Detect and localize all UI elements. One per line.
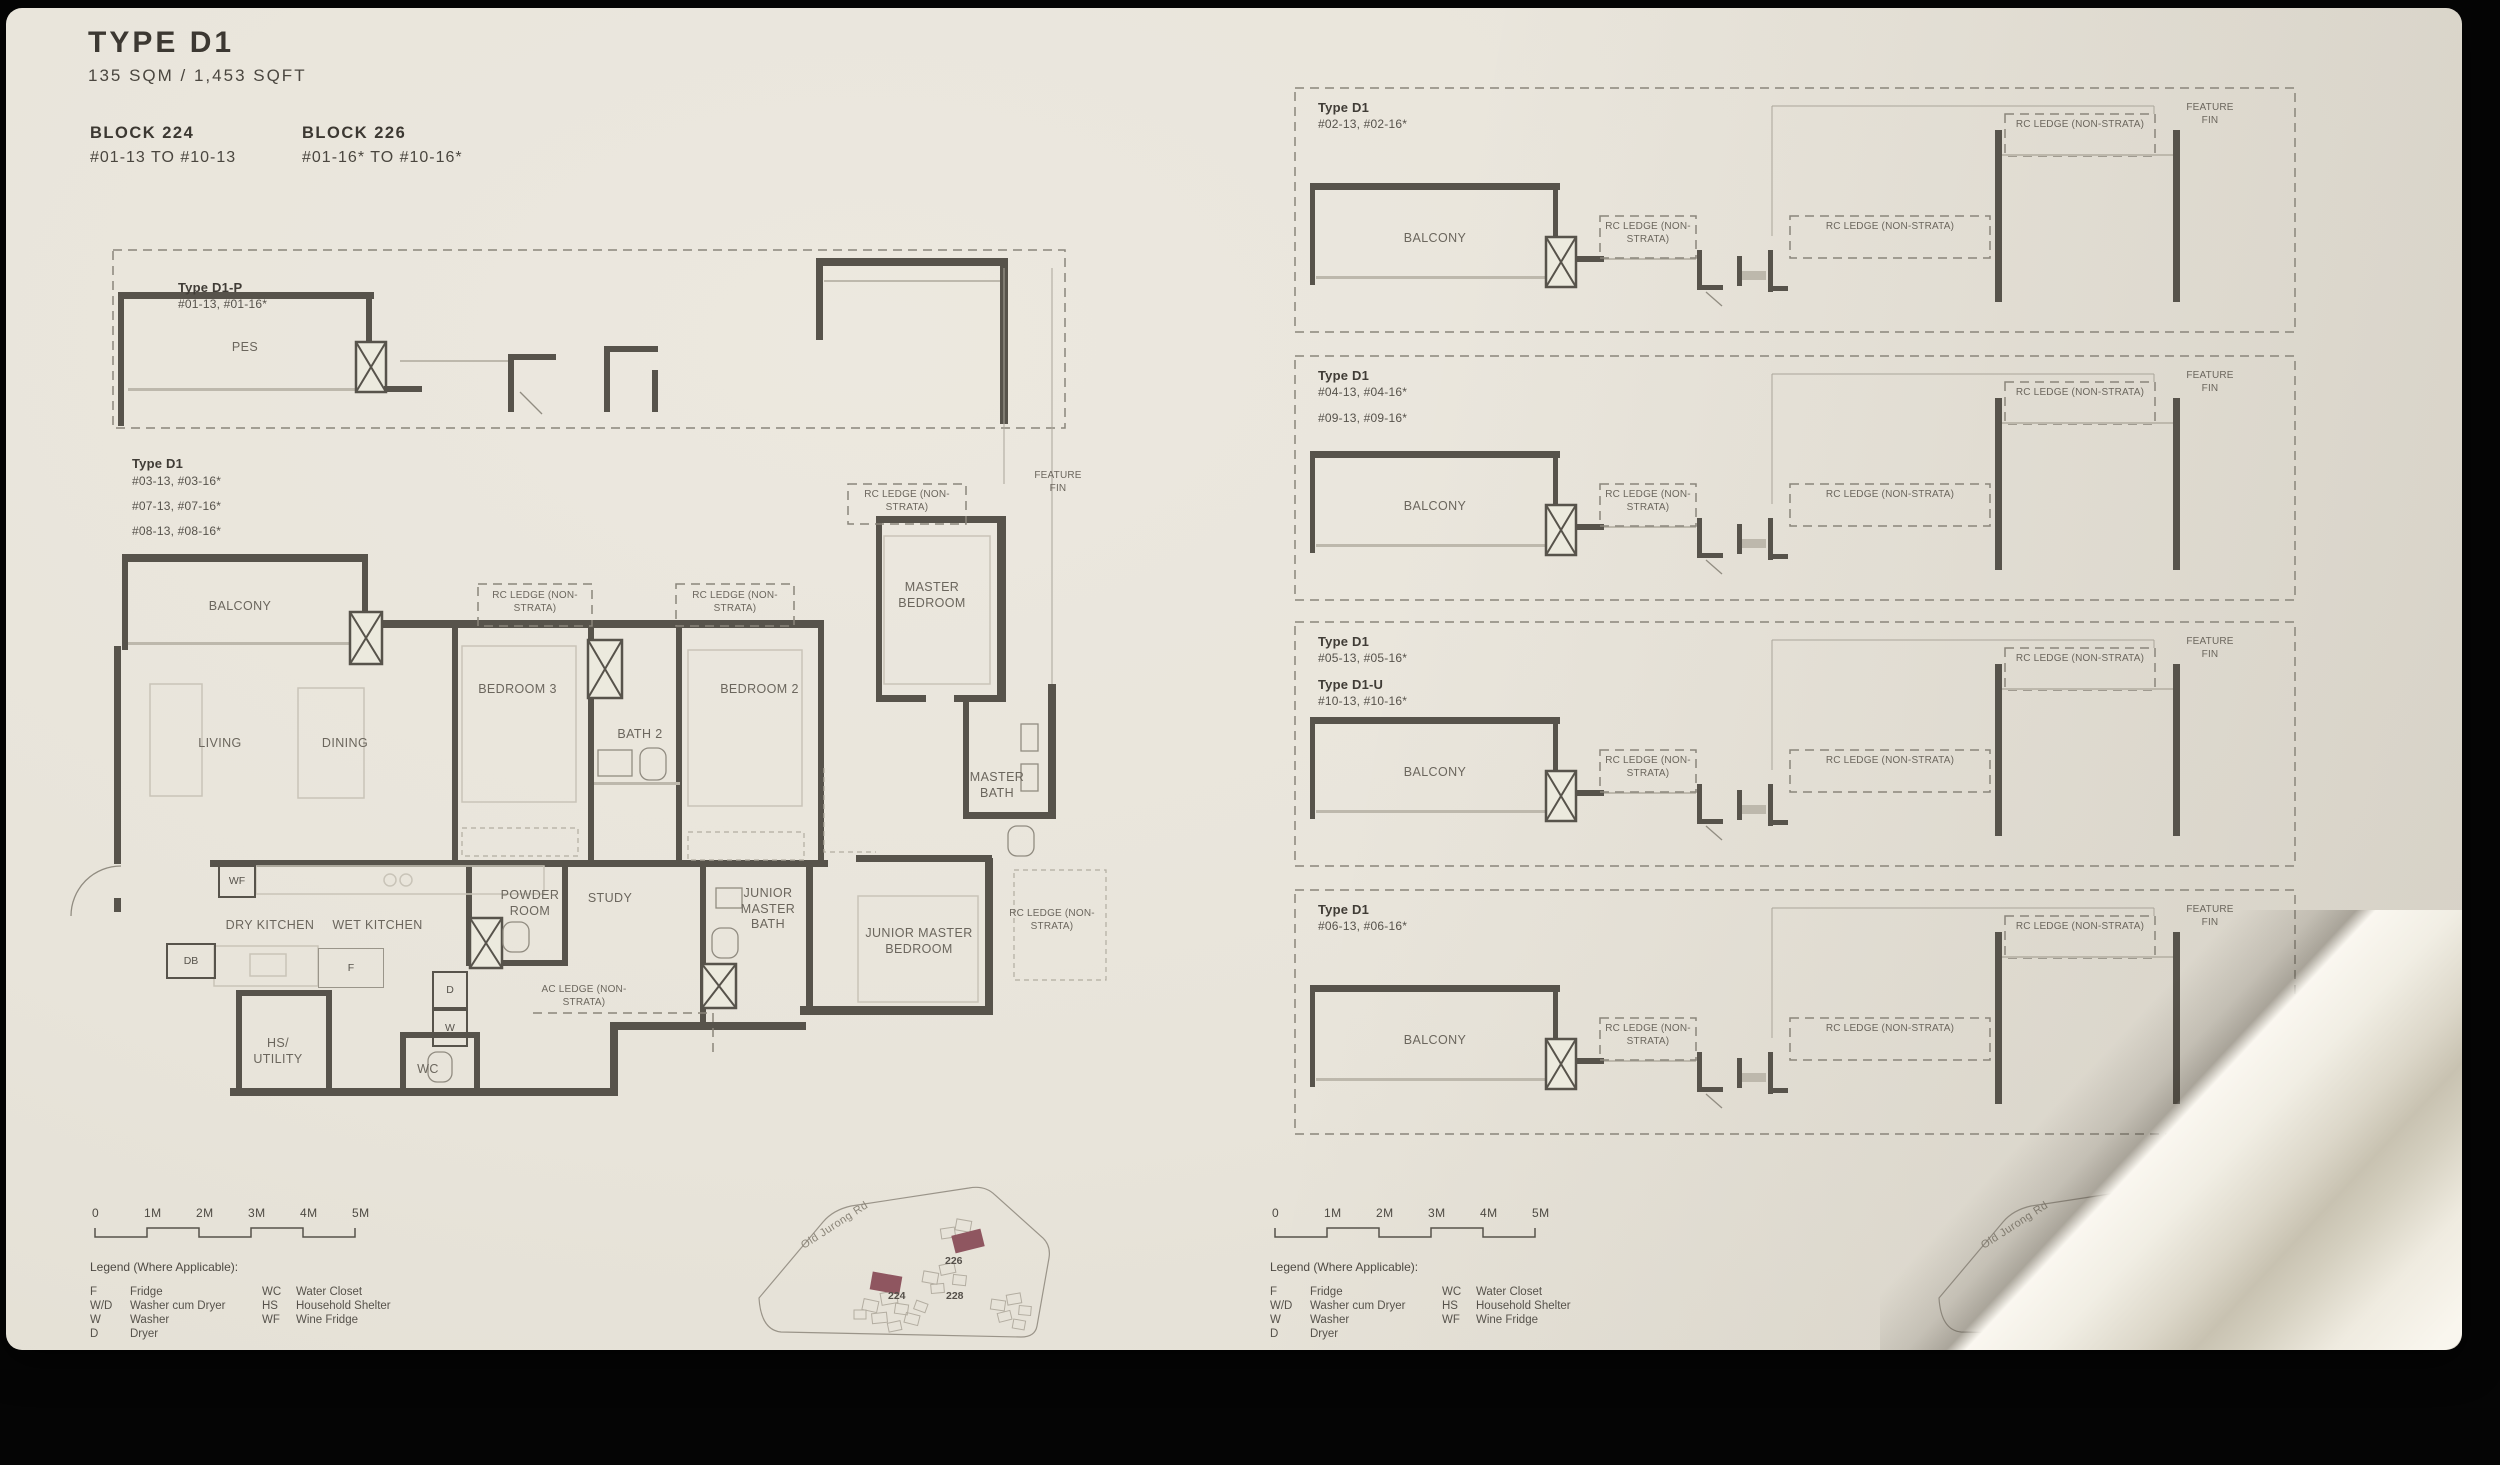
dryer-tag: D: [432, 971, 468, 1009]
legend-abbr: W/D: [90, 1300, 112, 1312]
legend-desc: Washer: [130, 1314, 169, 1326]
legend-abbr: HS: [262, 1300, 278, 1312]
scale-4m: 4M: [300, 1206, 318, 1220]
room-label-bedroom3: BEDROOM 3: [470, 682, 565, 698]
scale-1m: 1M: [144, 1206, 162, 1220]
elev3-units2: #10-13, #10-16*: [1318, 694, 1407, 708]
elev2-feature-fin: FEATURE FIN: [2180, 370, 2240, 395]
block-226-range: #01-16* TO #10-16*: [302, 149, 463, 167]
rc-ledge-label-junior: RC LEDGE (NON-STRATA): [998, 908, 1106, 933]
scale-1m: 1M: [1324, 1206, 1342, 1220]
legend-desc: Dryer: [1310, 1328, 1338, 1340]
scale-0: 0: [92, 1206, 99, 1220]
room-label-pes: PES: [205, 340, 285, 356]
legend-abbr: WF: [262, 1314, 280, 1326]
scale-3m: 3M: [248, 1206, 266, 1220]
legend-desc: Washer cum Dryer: [130, 1300, 225, 1312]
legend-abbr: F: [90, 1286, 97, 1298]
page-curl: [1880, 910, 2462, 1350]
legend-desc: Fridge: [1310, 1286, 1343, 1298]
block-226-name: BLOCK 226: [302, 124, 406, 143]
rc-ledge-label-2: RC LEDGE (NON-STRATA): [676, 590, 794, 615]
legend-desc: Wine Fridge: [1476, 1314, 1538, 1326]
elev3-units: #05-13, #05-16*: [1318, 651, 1407, 665]
room-label-powder-room: POWDER ROOM: [492, 888, 568, 919]
scale-0: 0: [1272, 1206, 1279, 1220]
site-map-block-226: 226: [945, 1255, 963, 1267]
elev3-rc-ledge-2: RC LEDGE (NON-STRATA): [1790, 755, 1990, 768]
elev3-rc-ledge-1: RC LEDGE (NON-STRATA): [1600, 755, 1696, 780]
db-tag: DB: [166, 943, 216, 979]
room-label-living: LIVING: [175, 736, 265, 752]
scale-4m: 4M: [1480, 1206, 1498, 1220]
legend-abbr: W: [90, 1314, 101, 1326]
legend-desc: Water Closet: [1476, 1286, 1542, 1298]
elev2-type: Type D1: [1318, 368, 1369, 383]
legend-abbr: F: [1270, 1286, 1277, 1298]
elev4-type: Type D1: [1318, 902, 1369, 917]
legend-abbr: WC: [262, 1286, 281, 1298]
block-224-range: #01-13 TO #10-13: [90, 149, 236, 167]
elev1-feature-fin: FEATURE FIN: [2180, 102, 2240, 127]
legend-abbr: W: [1270, 1314, 1281, 1326]
page-title: TYPE D1: [88, 26, 234, 60]
scale-2m: 2M: [1376, 1206, 1394, 1220]
rc-ledge-label-master: RC LEDGE (NON-STRATA): [848, 489, 966, 514]
legend-abbr: D: [90, 1328, 98, 1340]
elev3-type2: Type D1-U: [1318, 677, 1383, 692]
scale-3m: 3M: [1428, 1206, 1446, 1220]
legend-desc: Washer: [1310, 1314, 1349, 1326]
room-label-study: STUDY: [575, 891, 645, 907]
block-224-name: BLOCK 224: [90, 124, 194, 143]
room-label-bath2: BATH 2: [600, 727, 680, 743]
main-units-1: #03-13, #03-16*: [132, 474, 221, 488]
elev3-balcony: BALCONY: [1385, 765, 1485, 781]
elev2-rc-ledge-2: RC LEDGE (NON-STRATA): [1790, 489, 1990, 502]
legend-abbr: D: [1270, 1328, 1278, 1340]
site-map-block-224: 224: [888, 1290, 906, 1302]
main-units-2: #07-13, #07-16*: [132, 499, 221, 513]
scale-2m: 2M: [196, 1206, 214, 1220]
elev2-rc-ledge-top: RC LEDGE (NON-STRATA): [2005, 387, 2155, 400]
elev1-type: Type D1: [1318, 100, 1369, 115]
brochure-page: TYPE D1 135 SQM / 1,453 SQFT BLOCK 224 #…: [0, 0, 2500, 1465]
rc-ledge-label-1: RC LEDGE (NON-STRATA): [478, 590, 592, 615]
legend-desc: Water Closet: [296, 1286, 362, 1298]
elev1-rc-ledge-top: RC LEDGE (NON-STRATA): [2005, 119, 2155, 132]
room-label-balcony: BALCONY: [180, 599, 300, 615]
room-label-ac-ledge: AC LEDGE (NON-STRATA): [528, 984, 640, 1009]
legend-desc: Fridge: [130, 1286, 163, 1298]
scale-5m: 5M: [1532, 1206, 1550, 1220]
washer-tag: W: [432, 1009, 468, 1047]
legend-abbr: WC: [1442, 1286, 1461, 1298]
legend-abbr: WF: [1442, 1314, 1460, 1326]
elev3-feature-fin: FEATURE FIN: [2180, 636, 2240, 661]
elev3-type: Type D1: [1318, 634, 1369, 649]
elev1-rc-ledge-1: RC LEDGE (NON-STRATA): [1600, 221, 1696, 246]
main-units-3: #08-13, #08-16*: [132, 524, 221, 538]
scale-5m: 5M: [352, 1206, 370, 1220]
elev4-balcony: BALCONY: [1385, 1033, 1485, 1049]
page-area: 135 SQM / 1,453 SQFT: [88, 66, 307, 86]
room-label-wet-kitchen: WET KITCHEN: [330, 918, 425, 934]
elev1-units: #02-13, #02-16*: [1318, 117, 1407, 131]
legend-desc: Dryer: [130, 1328, 158, 1340]
elev1-balcony: BALCONY: [1385, 231, 1485, 247]
elev2-balcony: BALCONY: [1385, 499, 1485, 515]
elev4-rc-ledge-1: RC LEDGE (NON-STRATA): [1600, 1023, 1696, 1048]
elev2-units: #04-13, #04-16*: [1318, 385, 1407, 399]
legend-desc: Household Shelter: [1476, 1300, 1571, 1312]
room-label-dry-kitchen: DRY KITCHEN: [225, 918, 315, 934]
elev3-rc-ledge-top: RC LEDGE (NON-STRATA): [2005, 653, 2155, 666]
room-label-dining: DINING: [300, 736, 390, 752]
room-label-bedroom2: BEDROOM 2: [712, 682, 807, 698]
elev4-units: #06-13, #06-16*: [1318, 919, 1407, 933]
legend-desc: Wine Fridge: [296, 1314, 358, 1326]
pes-units-label: #01-13, #01-16*: [178, 297, 267, 311]
legend-abbr: HS: [1442, 1300, 1458, 1312]
main-type-label: Type D1: [132, 456, 183, 471]
elev1-rc-ledge-2: RC LEDGE (NON-STRATA): [1790, 221, 1990, 234]
site-map-block-228: 228: [946, 1290, 964, 1302]
fridge-tag: F: [318, 948, 384, 988]
pes-type-label: Type D1-P: [178, 280, 242, 295]
legend-title: Legend (Where Applicable):: [1270, 1260, 1418, 1274]
room-label-wc: WC: [408, 1062, 448, 1078]
room-label-master-bath: MASTER BATH: [952, 770, 1042, 801]
room-label-junior-master-bedroom: JUNIOR MASTER BEDROOM: [864, 926, 974, 957]
wine-fridge-tag: WF: [218, 864, 256, 898]
legend-title: Legend (Where Applicable):: [90, 1260, 238, 1274]
room-label-master-bedroom: MASTER BEDROOM: [882, 580, 982, 611]
room-label-hs-utility: HS/ UTILITY: [243, 1036, 313, 1067]
elev2-units2: #09-13, #09-16*: [1318, 411, 1407, 425]
elev2-rc-ledge-1: RC LEDGE (NON-STRATA): [1600, 489, 1696, 514]
legend-desc: Household Shelter: [296, 1300, 391, 1312]
legend-abbr: W/D: [1270, 1300, 1292, 1312]
room-label-junior-master-bath: JUNIOR MASTER BATH: [728, 886, 808, 933]
feature-fin-label-main: FEATURE FIN: [1028, 470, 1088, 495]
legend-desc: Washer cum Dryer: [1310, 1300, 1405, 1312]
